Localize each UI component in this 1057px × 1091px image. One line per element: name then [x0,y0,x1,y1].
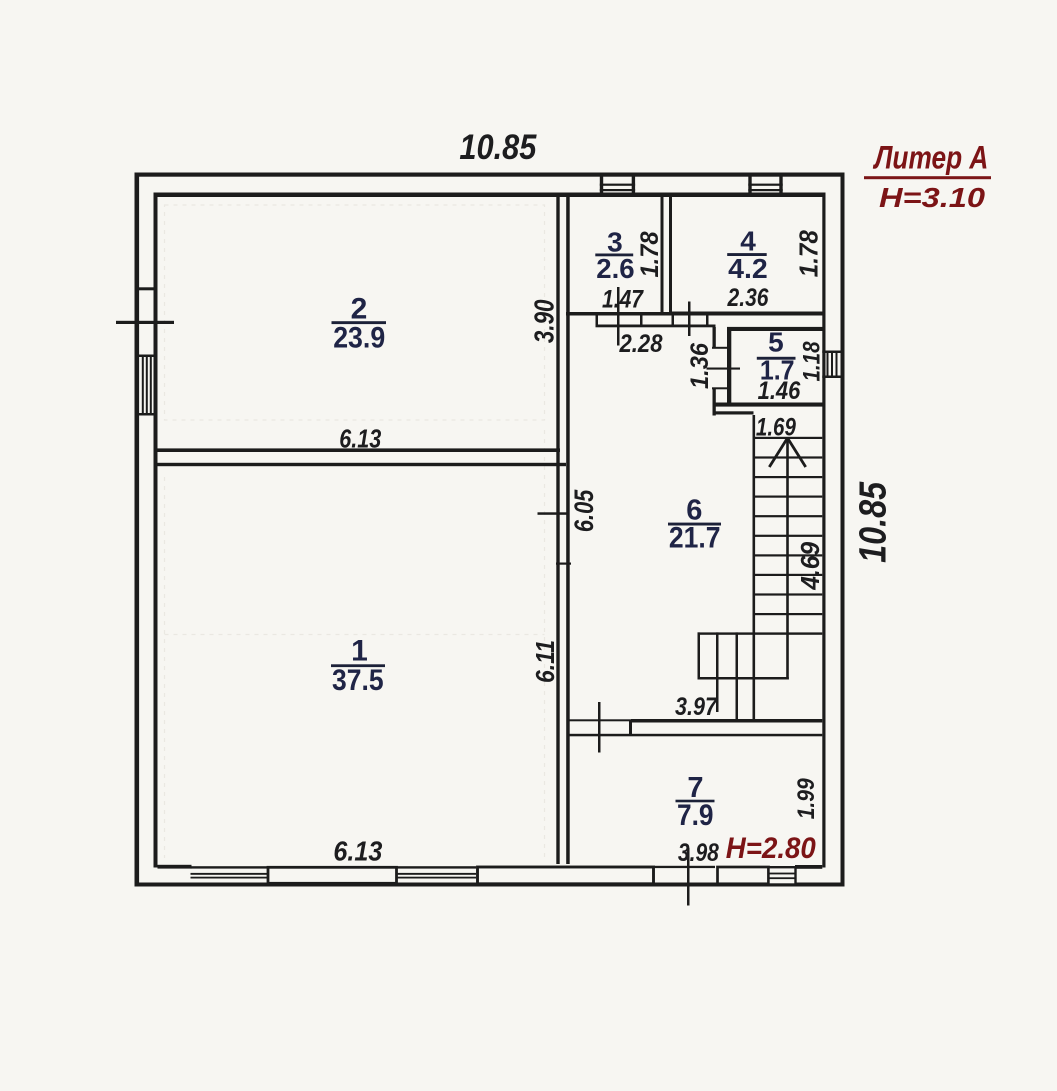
svg-text:1.78: 1.78 [794,230,824,277]
svg-text:Н=3.10: Н=3.10 [879,182,985,213]
svg-text:6.05: 6.05 [569,489,599,532]
svg-text:Н=2.80: Н=2.80 [726,832,816,865]
svg-text:2.36: 2.36 [727,284,770,312]
svg-text:5: 5 [768,326,784,357]
svg-text:10.85: 10.85 [852,481,894,563]
svg-text:6.13: 6.13 [339,424,381,454]
svg-text:2.28: 2.28 [619,330,663,358]
svg-text:1.18: 1.18 [799,341,826,382]
svg-text:21.7: 21.7 [669,521,721,554]
svg-text:23.9: 23.9 [333,322,385,355]
svg-text:3.98: 3.98 [678,839,719,867]
svg-text:6.13: 6.13 [333,835,382,866]
svg-text:10.85: 10.85 [459,128,536,167]
svg-text:1.69: 1.69 [756,414,796,442]
svg-text:1.46: 1.46 [758,377,802,405]
svg-text:2: 2 [351,292,368,325]
svg-text:37.5: 37.5 [332,664,384,697]
svg-text:4.69: 4.69 [795,541,825,590]
svg-text:7.9: 7.9 [677,799,714,832]
svg-text:1.36: 1.36 [686,342,714,389]
svg-text:1.47: 1.47 [602,286,644,314]
svg-text:6.11: 6.11 [530,640,560,683]
svg-text:3.90: 3.90 [528,299,559,343]
svg-text:2.6: 2.6 [596,253,634,284]
svg-text:4: 4 [740,226,756,257]
svg-text:1.99: 1.99 [793,778,820,820]
svg-text:3.97: 3.97 [675,693,718,721]
svg-text:1.78: 1.78 [636,231,664,277]
svg-text:Литер А: Литер А [873,140,989,176]
svg-text:1: 1 [351,635,368,668]
svg-text:4.2: 4.2 [728,253,768,284]
